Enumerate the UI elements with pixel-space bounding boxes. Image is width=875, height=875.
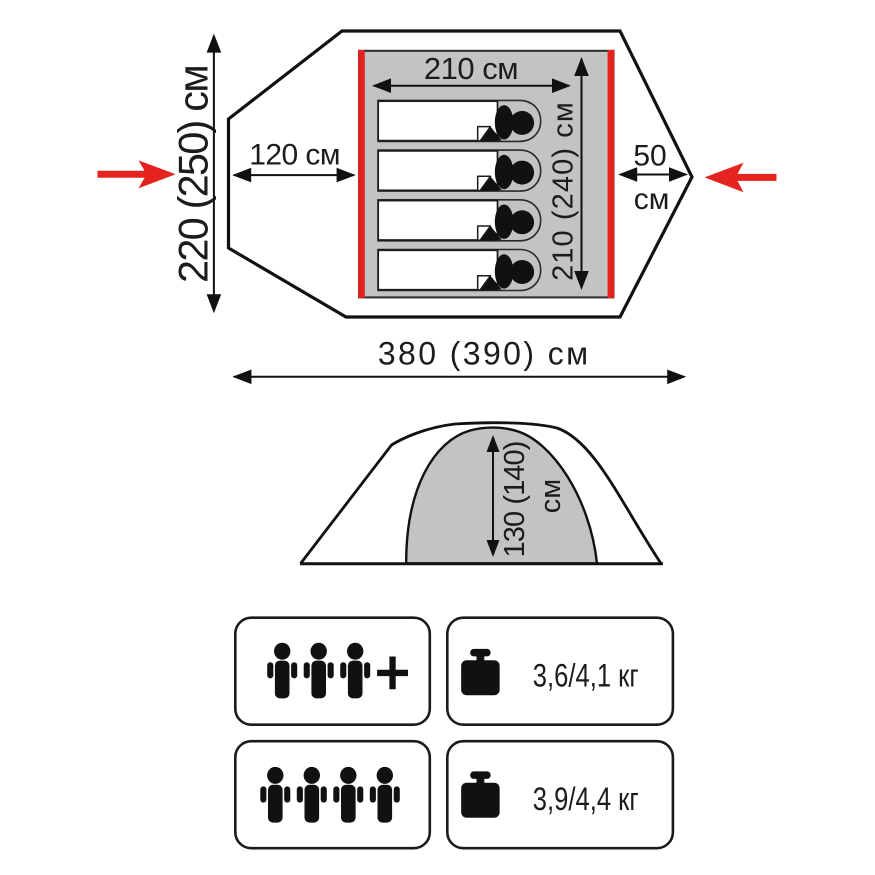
svg-text:50: 50 — [633, 140, 666, 173]
svg-text:120 см: 120 см — [249, 139, 340, 172]
svg-text:210 см: 210 см — [424, 51, 518, 86]
svg-text:220 (250) см: 220 (250) см — [170, 66, 217, 283]
svg-text:210 (240) см: 210 (240) см — [548, 101, 580, 281]
svg-text:см: см — [535, 479, 567, 513]
svg-text:3,9/4,4 кг: 3,9/4,4 кг — [533, 782, 639, 817]
svg-text:см: см — [634, 183, 670, 216]
svg-text:3,6/4,1 кг: 3,6/4,1 кг — [533, 659, 639, 694]
svg-text:380 (390) см: 380 (390) см — [378, 336, 591, 372]
svg-text:130 (140): 130 (140) — [499, 441, 531, 557]
